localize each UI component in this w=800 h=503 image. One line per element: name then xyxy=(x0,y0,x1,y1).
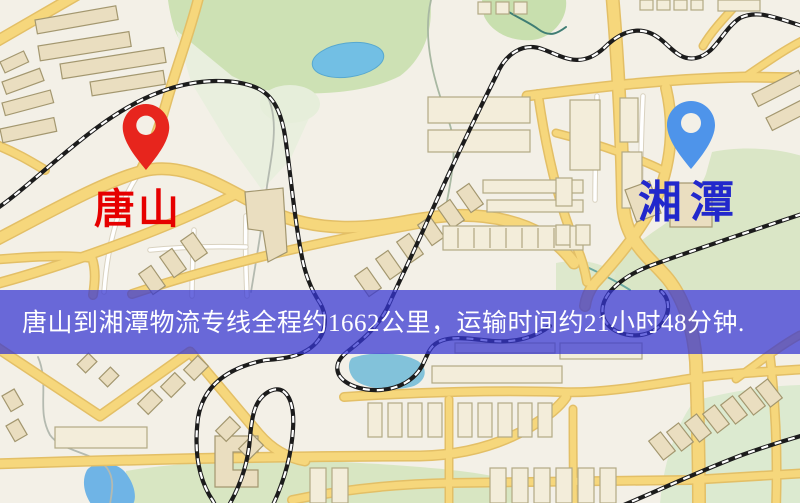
route-info-banner: 唐山到湘潭物流专线全程约1662公里，运输时间约21小时48分钟. xyxy=(0,290,800,354)
map: 唐山到湘潭物流专线全程约1662公里，运输时间约21小时48分钟. 唐山 湘潭 xyxy=(0,0,800,503)
route-info-text: 唐山到湘潭物流专线全程约1662公里，运输时间约21小时48分钟. xyxy=(22,309,745,337)
map-screenshot: 唐山到湘潭物流专线全程约1662公里，运输时间约21小时48分钟. 唐山 湘潭 xyxy=(0,0,800,503)
origin-label: 唐山 xyxy=(94,186,182,232)
destination-label: 湘潭 xyxy=(638,178,742,227)
